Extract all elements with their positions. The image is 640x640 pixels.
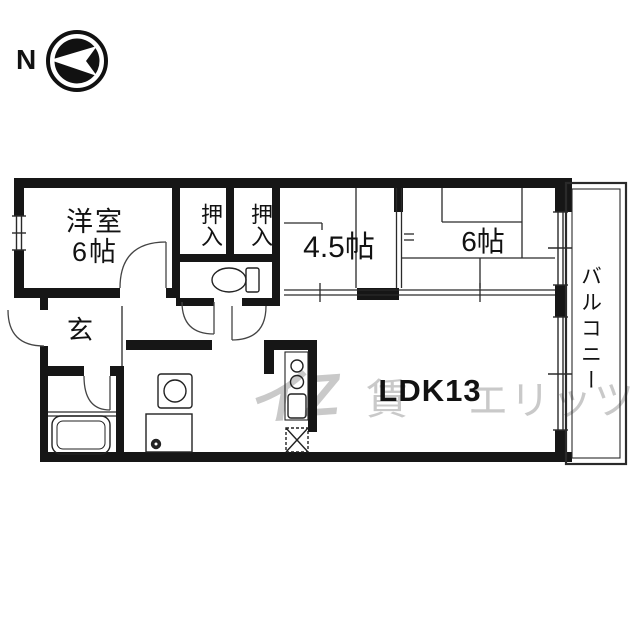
window-balcony-lower xyxy=(548,317,572,430)
washer-pan-icon xyxy=(146,414,192,452)
kitchen-sink-icon xyxy=(288,394,306,418)
wall-left-lower-top xyxy=(40,296,48,310)
wall-genkan-bath-b xyxy=(110,366,124,376)
wall-bedroom-bottom-a xyxy=(14,288,120,298)
entry-door-arc xyxy=(8,310,44,346)
label-western-room-line2: 6帖 xyxy=(35,237,155,267)
label-room-4-5: 4.5帖 xyxy=(269,231,409,265)
toilet-door-arc xyxy=(182,302,214,334)
label-balcony: バルコニー xyxy=(578,213,602,447)
refrigerator-icon xyxy=(286,428,308,452)
wall-hall-utility xyxy=(126,340,212,350)
washbasin-icon xyxy=(158,374,192,408)
north-label: N xyxy=(16,44,36,75)
window-balcony-upper xyxy=(548,212,572,285)
bathtub-icon xyxy=(52,416,110,454)
wall-top xyxy=(14,178,572,188)
wall-genkan-bath-a xyxy=(40,366,84,376)
stove-burner-icon xyxy=(291,376,304,389)
label-room-6: 6帖 xyxy=(433,226,533,257)
hall-door-arc xyxy=(232,306,266,340)
compass-icon xyxy=(48,32,106,90)
toilet-icon xyxy=(212,268,259,292)
wall-kitchen-left-stub xyxy=(264,340,274,374)
wall-left-upper-a xyxy=(14,178,24,216)
washroom-door-arc xyxy=(84,376,110,410)
label-western-room: 洋室 6帖 xyxy=(35,207,155,267)
label-entrance: 玄 xyxy=(60,316,100,345)
label-closet-2: 押入 xyxy=(234,194,272,256)
wall-toilet-bottom-b xyxy=(242,298,280,306)
wall-closet-divider xyxy=(226,188,234,254)
wall-bedroom-right xyxy=(172,188,180,298)
floor-plan-image: イZ 賃 エリッツ xyxy=(0,0,640,640)
label-ldk: LDK13 xyxy=(330,374,530,409)
wall-kitchen-right xyxy=(308,340,317,432)
kitchen-counter xyxy=(285,352,308,420)
label-closet-1: 押入 xyxy=(182,194,222,256)
window-left xyxy=(12,216,26,250)
label-western-room-line1: 洋室 xyxy=(35,207,155,237)
wall-left-lower xyxy=(40,346,48,462)
wall-bath-right xyxy=(116,376,124,462)
stove-burner-icon xyxy=(291,360,303,372)
